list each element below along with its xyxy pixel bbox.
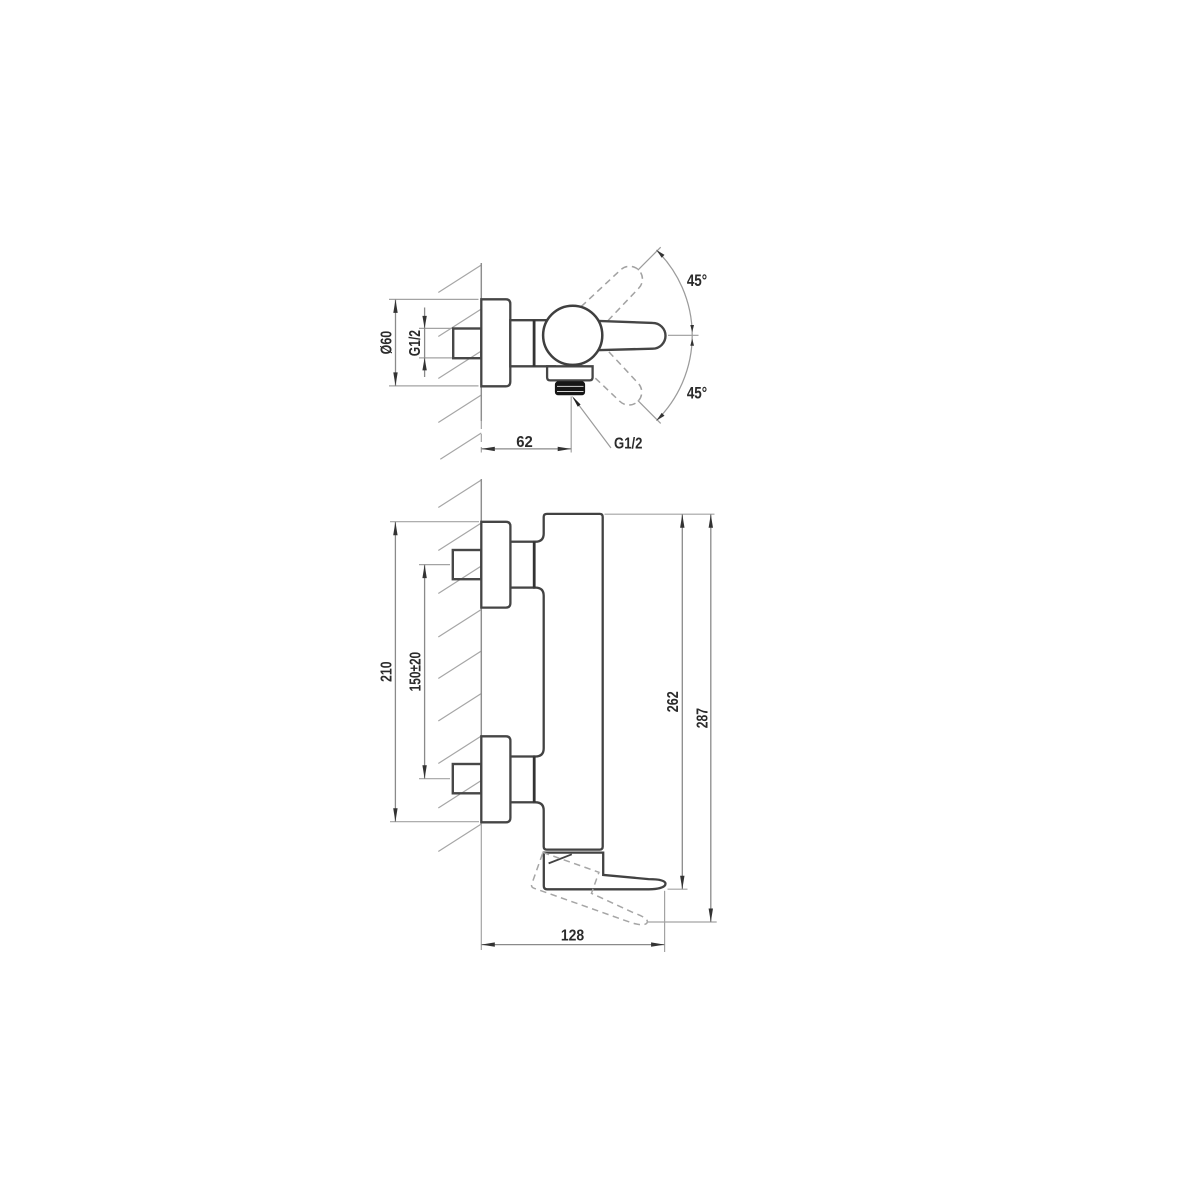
svg-text:150±20: 150±20 [407, 652, 424, 692]
svg-text:45°: 45° [687, 384, 707, 402]
svg-text:G1/2: G1/2 [407, 330, 424, 356]
svg-text:287: 287 [695, 708, 712, 728]
svg-text:Ø60: Ø60 [379, 331, 396, 355]
svg-text:62: 62 [516, 434, 533, 451]
svg-text:45°: 45° [687, 272, 707, 290]
svg-text:210: 210 [378, 661, 395, 681]
svg-text:128: 128 [561, 928, 584, 945]
svg-text:G1/2: G1/2 [614, 436, 642, 453]
svg-text:262: 262 [665, 691, 682, 712]
